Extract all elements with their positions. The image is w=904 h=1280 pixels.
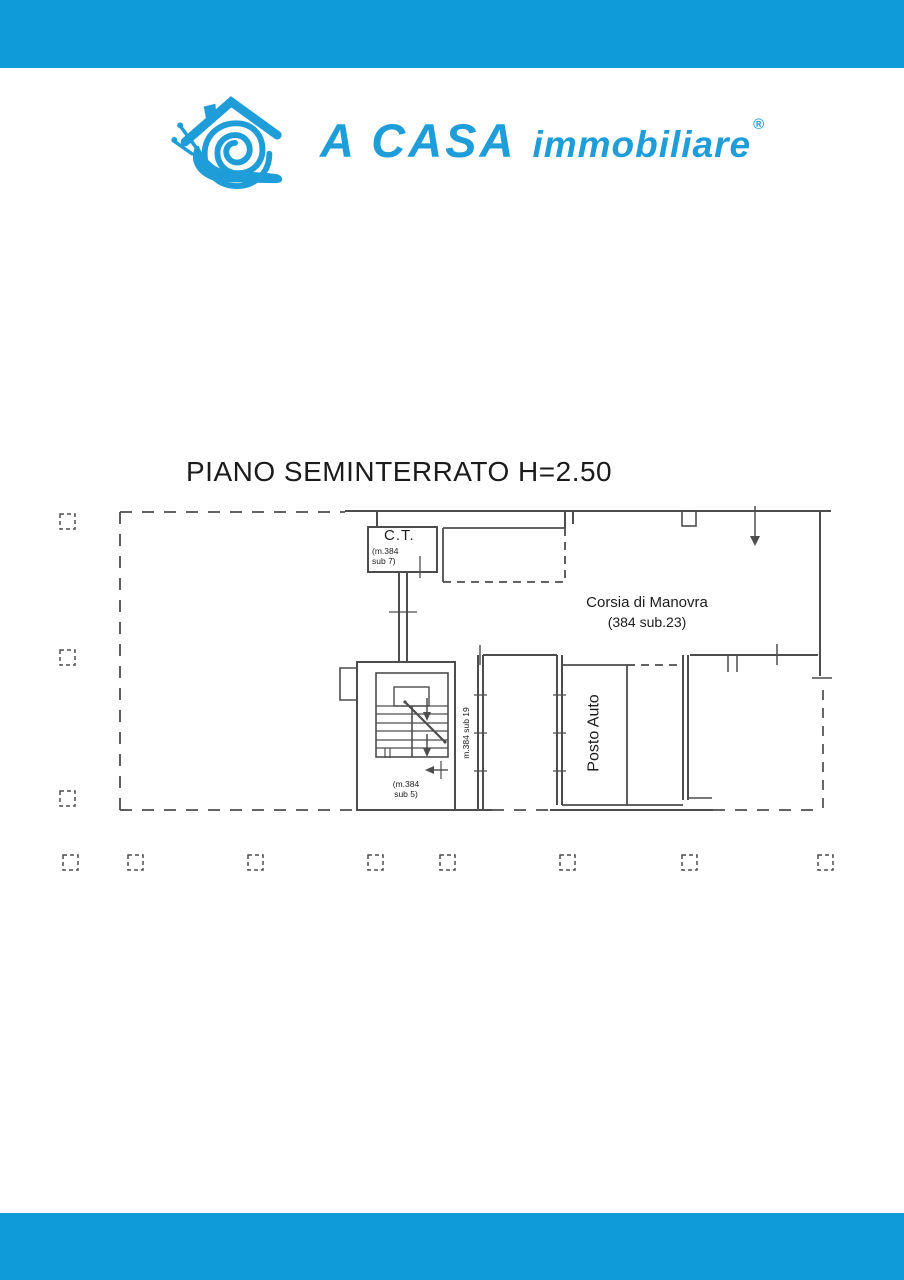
corridor-walls xyxy=(389,572,417,662)
posto-auto-stall xyxy=(562,655,712,805)
wall-joint-ticks xyxy=(474,695,566,771)
bottom-blue-band xyxy=(0,1213,904,1280)
stair-door-arrow xyxy=(425,761,448,779)
ct-room-label: C.T. xyxy=(384,527,415,545)
corsia-di-manovra-label: Corsia di Manovra (384 sub.23) xyxy=(568,594,726,630)
floorplan-linework xyxy=(0,0,904,1280)
column-markers xyxy=(60,514,833,870)
outer-dashed-boundary xyxy=(120,512,358,810)
parking-stall-walls xyxy=(474,645,566,810)
corridor-sub19-label: m.384 sub 19 xyxy=(461,707,471,759)
storage-dashed-room xyxy=(443,528,565,582)
right-room xyxy=(690,644,823,808)
stairwell-sublabel: (m.384 sub 5) xyxy=(378,779,434,799)
posto-auto-label: Posto Auto xyxy=(586,694,605,771)
ct-room-sublabel: (m.384 sub 7) xyxy=(372,546,398,566)
document-page: A CASAimmobiliare® PIANO SEMINTERRATO H=… xyxy=(0,0,904,1280)
